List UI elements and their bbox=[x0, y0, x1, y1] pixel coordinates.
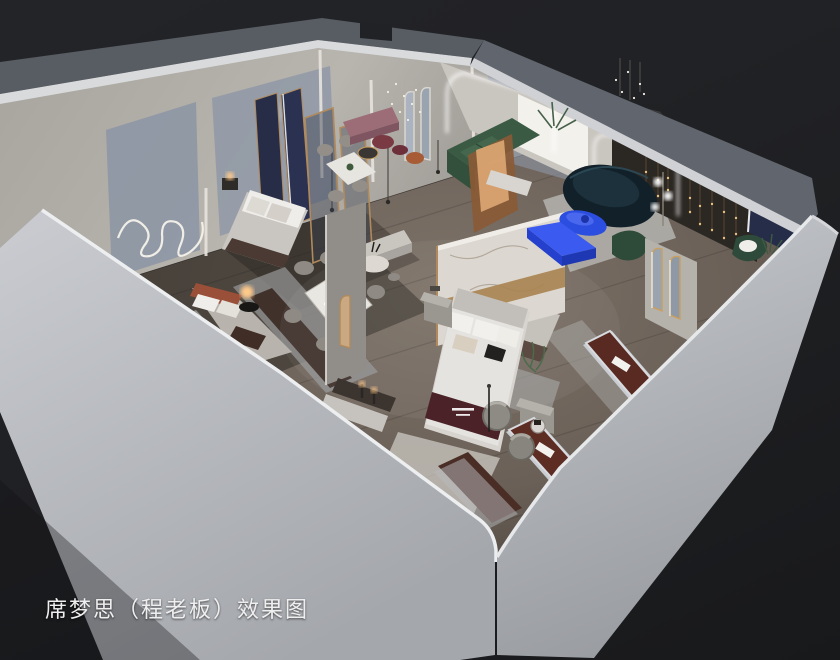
cylinder-lamp bbox=[359, 381, 365, 387]
arch-mirror bbox=[670, 256, 680, 319]
table-decor bbox=[534, 420, 541, 425]
burgundy-pouf bbox=[392, 145, 408, 155]
stool bbox=[388, 273, 400, 281]
white-pillow bbox=[739, 240, 757, 252]
table-decor bbox=[581, 215, 589, 223]
gray-partition-wall bbox=[326, 202, 366, 385]
orange-lounge-chair bbox=[406, 152, 424, 164]
render-canvas: 席梦思（程老板）效果图 bbox=[0, 0, 840, 660]
nightstand-decor bbox=[430, 286, 440, 291]
bedside-glow-lamp bbox=[226, 172, 234, 180]
side-table bbox=[239, 302, 259, 312]
nw-wall-door-gap bbox=[360, 22, 392, 41]
lamp-head bbox=[487, 384, 491, 388]
arch-niche-mirror bbox=[340, 296, 350, 348]
round-coffee-table bbox=[358, 147, 378, 159]
burgundy-pouf bbox=[372, 135, 394, 149]
table-plant bbox=[347, 164, 354, 171]
cylinder-lamp bbox=[371, 387, 377, 393]
showroom-3d-render bbox=[0, 0, 840, 660]
bedside-glow-lamp bbox=[241, 286, 254, 299]
caption: 席梦思（程老板）效果图 bbox=[45, 592, 309, 624]
wall-panel-room1 bbox=[106, 102, 200, 278]
arch-mirror bbox=[652, 248, 662, 311]
